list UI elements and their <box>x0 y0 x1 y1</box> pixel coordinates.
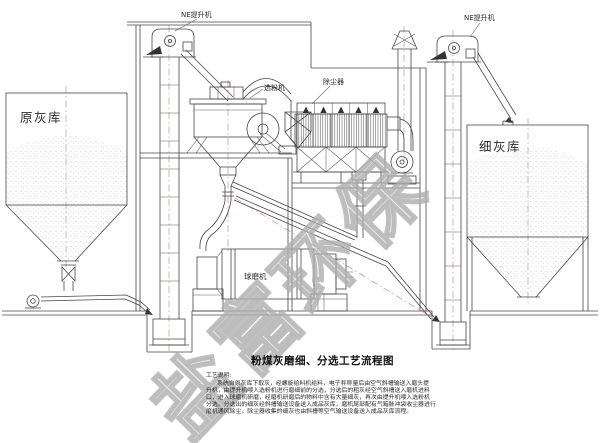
notes-heading: 工艺说明: <box>206 373 440 380</box>
air-slide-drop <box>386 262 434 319</box>
elevator-pit <box>432 311 470 349</box>
drawing-title: 粉煤灰磨细、分选工艺流程图 <box>205 353 440 368</box>
raw-ash-silo-label: 原灰库 <box>20 110 62 125</box>
fine-ash-silo: 细灰库 <box>467 121 588 311</box>
air-slides <box>231 182 440 322</box>
ball-mill-label: 球磨机 <box>244 271 267 281</box>
leader-line <box>312 86 330 104</box>
dust-collector-label: 除尘器 <box>323 77 344 86</box>
chute-to-fine-silo <box>473 53 516 119</box>
left-elevator-label: NE提升机 <box>181 10 212 19</box>
dust-collector: 除尘器 <box>291 77 413 238</box>
leader-line <box>250 89 263 98</box>
separator-feed-box <box>210 87 243 99</box>
ball-mill: 球磨机 <box>193 249 353 311</box>
mill-feed-journal <box>197 257 217 289</box>
exhaust-stack <box>388 31 417 184</box>
mill-pedestal-left <box>193 289 223 311</box>
notes-line: 磨机通风除尘，除尘器收集的细灰也由斜槽等空气输送设备送入成品灰库流程。 <box>206 409 440 416</box>
notes-line: 系统自原灰库下取灰，经螺旋给料机给料，电子秤称量后由空气斜槽输送入磨头提 <box>206 381 440 388</box>
leader-line <box>470 23 480 37</box>
silo-discharge-valve <box>61 265 76 281</box>
process-notes: 工艺说明: 系统自原灰库下取灰，经螺旋给料机给料，电子秤称量后由空气斜槽输送入磨… <box>206 373 440 416</box>
pulse-valves <box>303 107 379 114</box>
left-elevator: NE提升机 <box>143 10 233 352</box>
raw-ash-silo: 原灰库 <box>6 93 153 315</box>
process-flow-drawing: 原灰库 NE提升机 选粉机 <box>0 0 600 443</box>
dc-discharge-pipe <box>355 180 365 238</box>
exhaust-fan <box>391 151 413 173</box>
notes-line: 分选。分选出的细灰经斜槽输送设备送入成品灰库，磨机尾部配有气箱脉冲袋收尘器进行 <box>206 402 440 409</box>
bag-section <box>295 114 387 147</box>
right-elevator-label: NE提升机 <box>464 13 495 22</box>
notes-line: 升机，由提升机喂入选粉机进行磨细前的分选，分选后的粗灰经空气斜槽送入磨机进料 <box>206 388 440 395</box>
separator-label: 选粉机 <box>264 83 285 92</box>
notes-line: 口，进入球磨机研磨，经磨机研磨后的物料中含有大量细灰，再次由提升机喂入选粉机 <box>206 395 440 402</box>
fine-ash-silo-label: 细灰库 <box>479 139 521 154</box>
mill-drive-head <box>314 254 336 294</box>
chute-head-to-separator <box>181 50 233 101</box>
elevator-shaft <box>160 57 179 319</box>
air-slide-to-left-elevator <box>41 295 150 312</box>
air-slide-upper <box>231 182 357 240</box>
blower <box>27 295 39 307</box>
separator-discharge-chute <box>200 201 231 251</box>
stack-body <box>398 49 411 151</box>
mill-shell <box>222 249 314 299</box>
mill-pedestal-right <box>311 294 347 311</box>
air-slide-lower <box>234 196 388 266</box>
ground-line <box>2 311 598 315</box>
